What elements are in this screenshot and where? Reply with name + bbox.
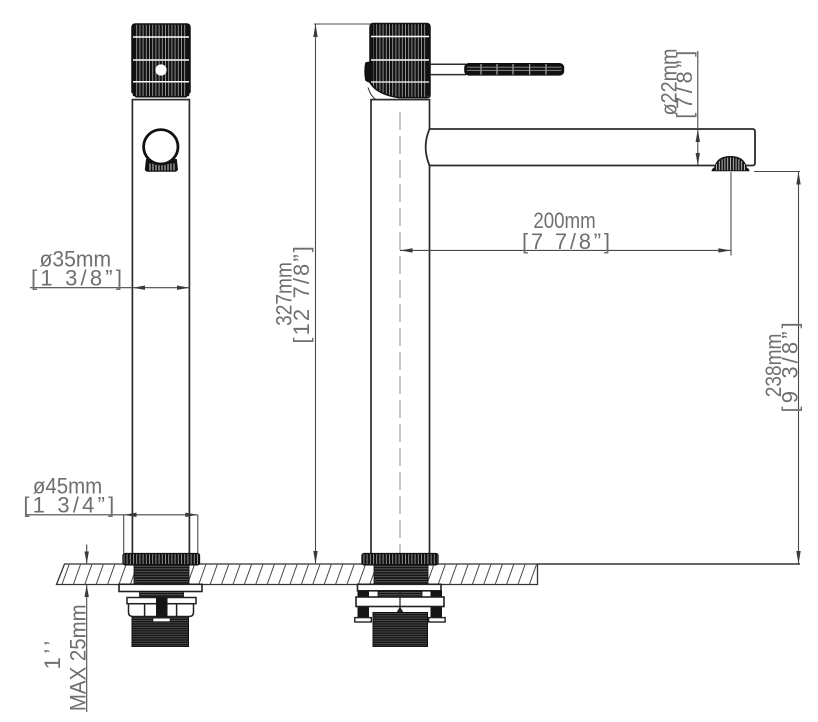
- svg-text:[1 3/4”]: [1 3/4”]: [23, 493, 117, 518]
- svg-text:MAX 25mm: MAX 25mm: [66, 604, 91, 711]
- svg-text:[9 3/8”]: [9 3/8”]: [778, 319, 803, 412]
- svg-text:[7/8”]: [7/8”]: [672, 47, 697, 119]
- svg-text:[1 3/8”]: [1 3/8”]: [31, 266, 125, 291]
- svg-text:1’’: 1’’: [40, 637, 65, 669]
- svg-text:[7 7/8”]: [7 7/8”]: [522, 229, 613, 254]
- svg-text:[12 7/8”]: [12 7/8”]: [289, 244, 314, 344]
